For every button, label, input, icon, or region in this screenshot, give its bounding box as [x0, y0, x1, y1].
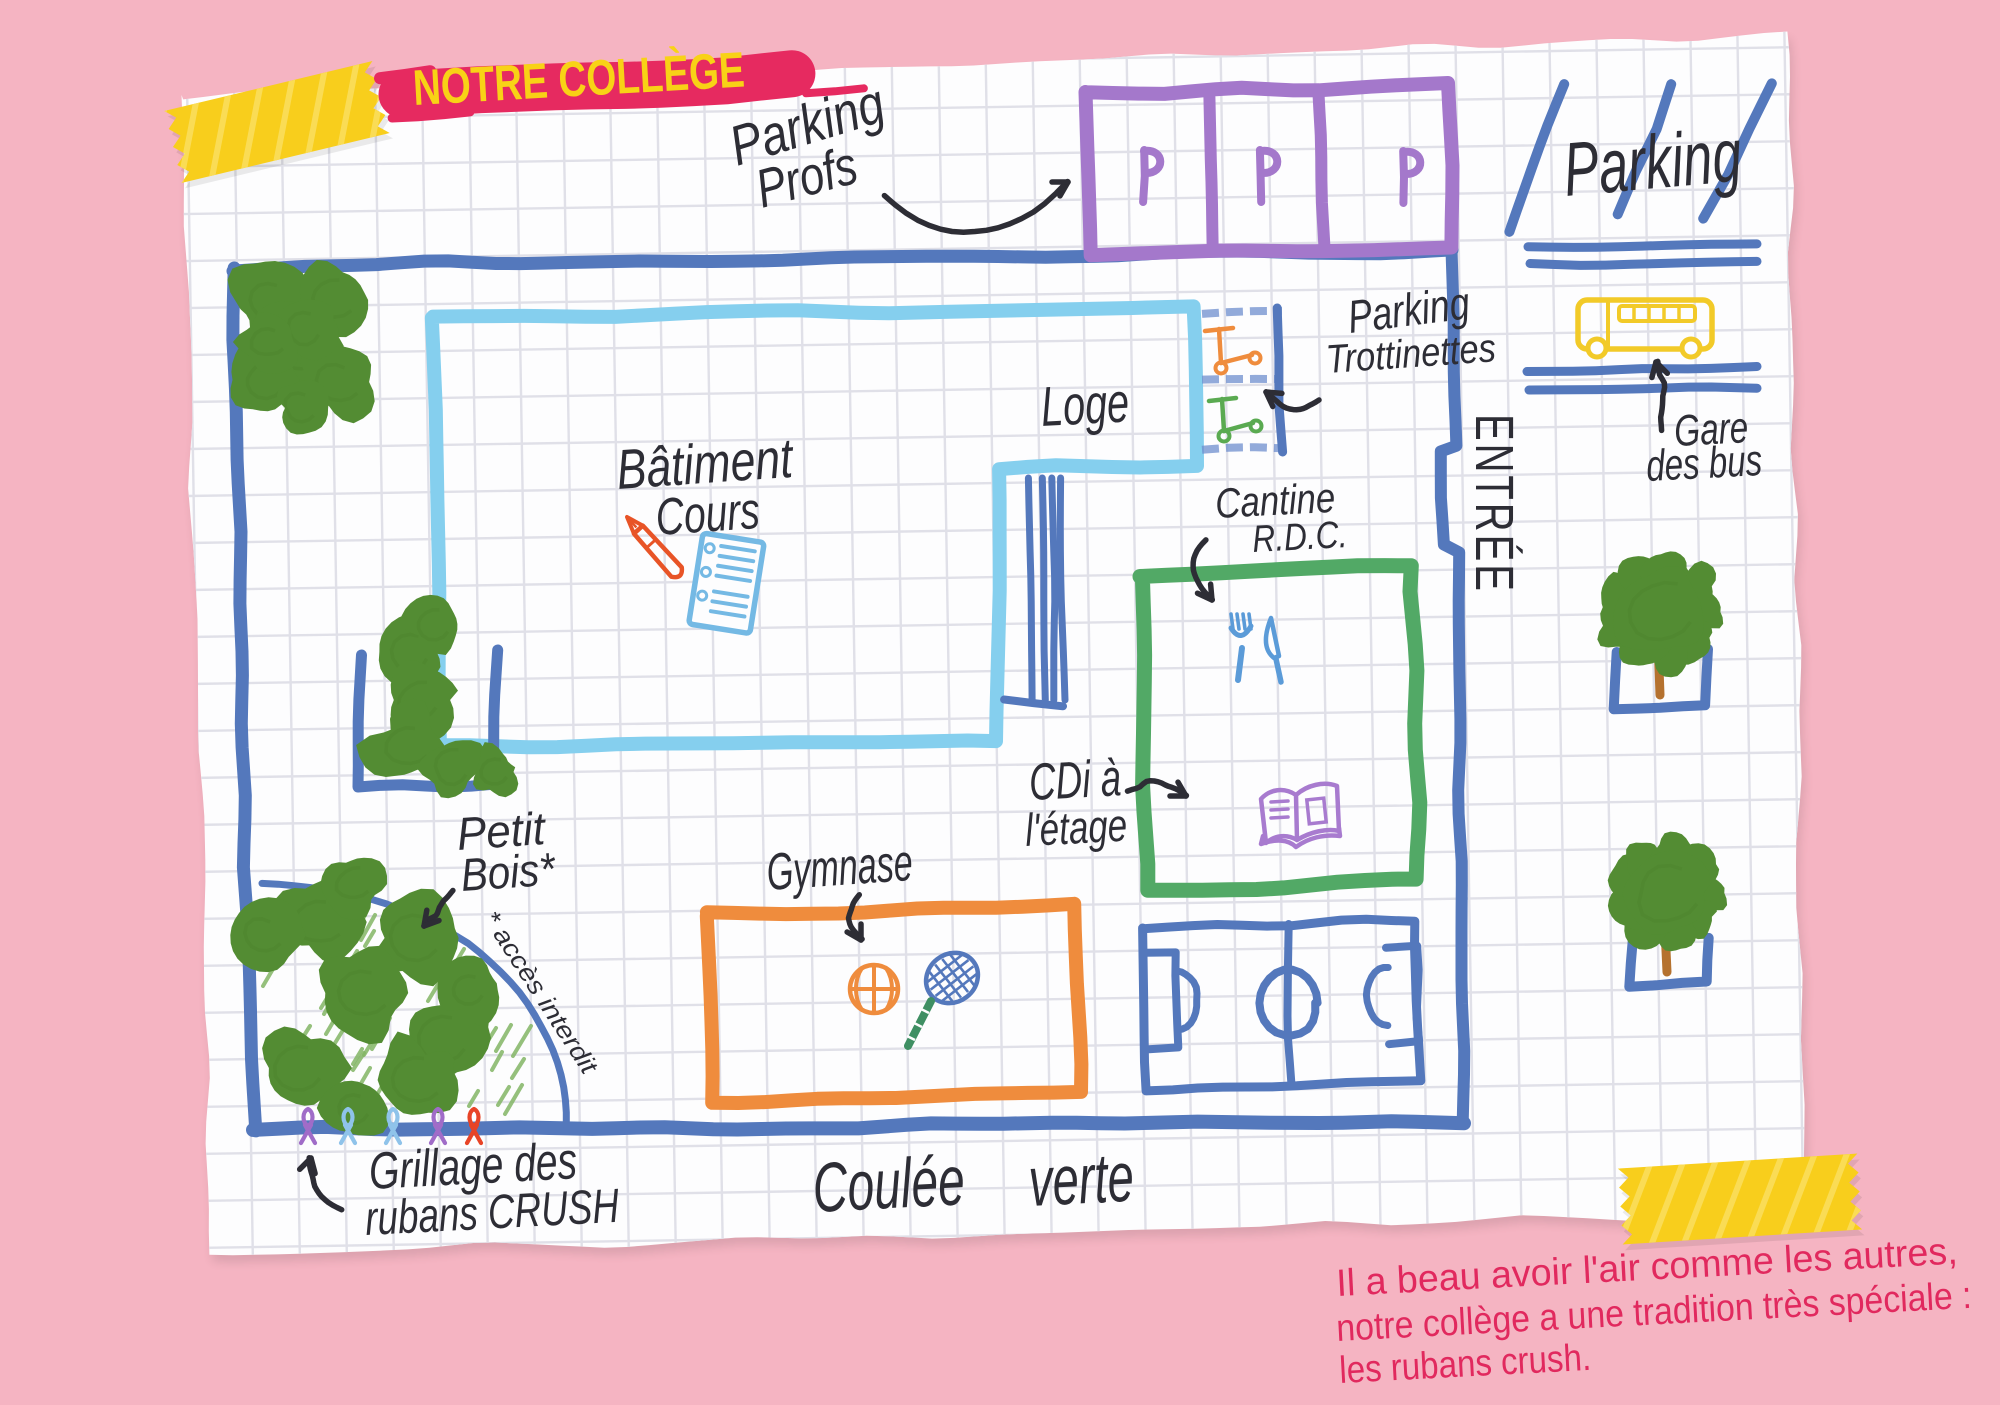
svg-text:l'étage: l'étage: [1024, 799, 1129, 856]
svg-text:Gymnase: Gymnase: [765, 834, 915, 902]
svg-text:Cours: Cours: [654, 482, 762, 547]
svg-text:des bus: des bus: [1645, 436, 1763, 491]
svg-text:ENTRÉE: ENTRÉE: [1463, 414, 1523, 594]
svg-text:Coulée: Coulée: [811, 1141, 967, 1227]
svg-text:Loge: Loge: [1039, 370, 1130, 438]
svg-text:verte: verte: [1027, 1138, 1136, 1221]
svg-text:Parking: Parking: [1560, 113, 1745, 213]
svg-text:R.D.C.: R.D.C.: [1251, 514, 1348, 561]
svg-text:Bois*: Bois*: [459, 842, 558, 901]
